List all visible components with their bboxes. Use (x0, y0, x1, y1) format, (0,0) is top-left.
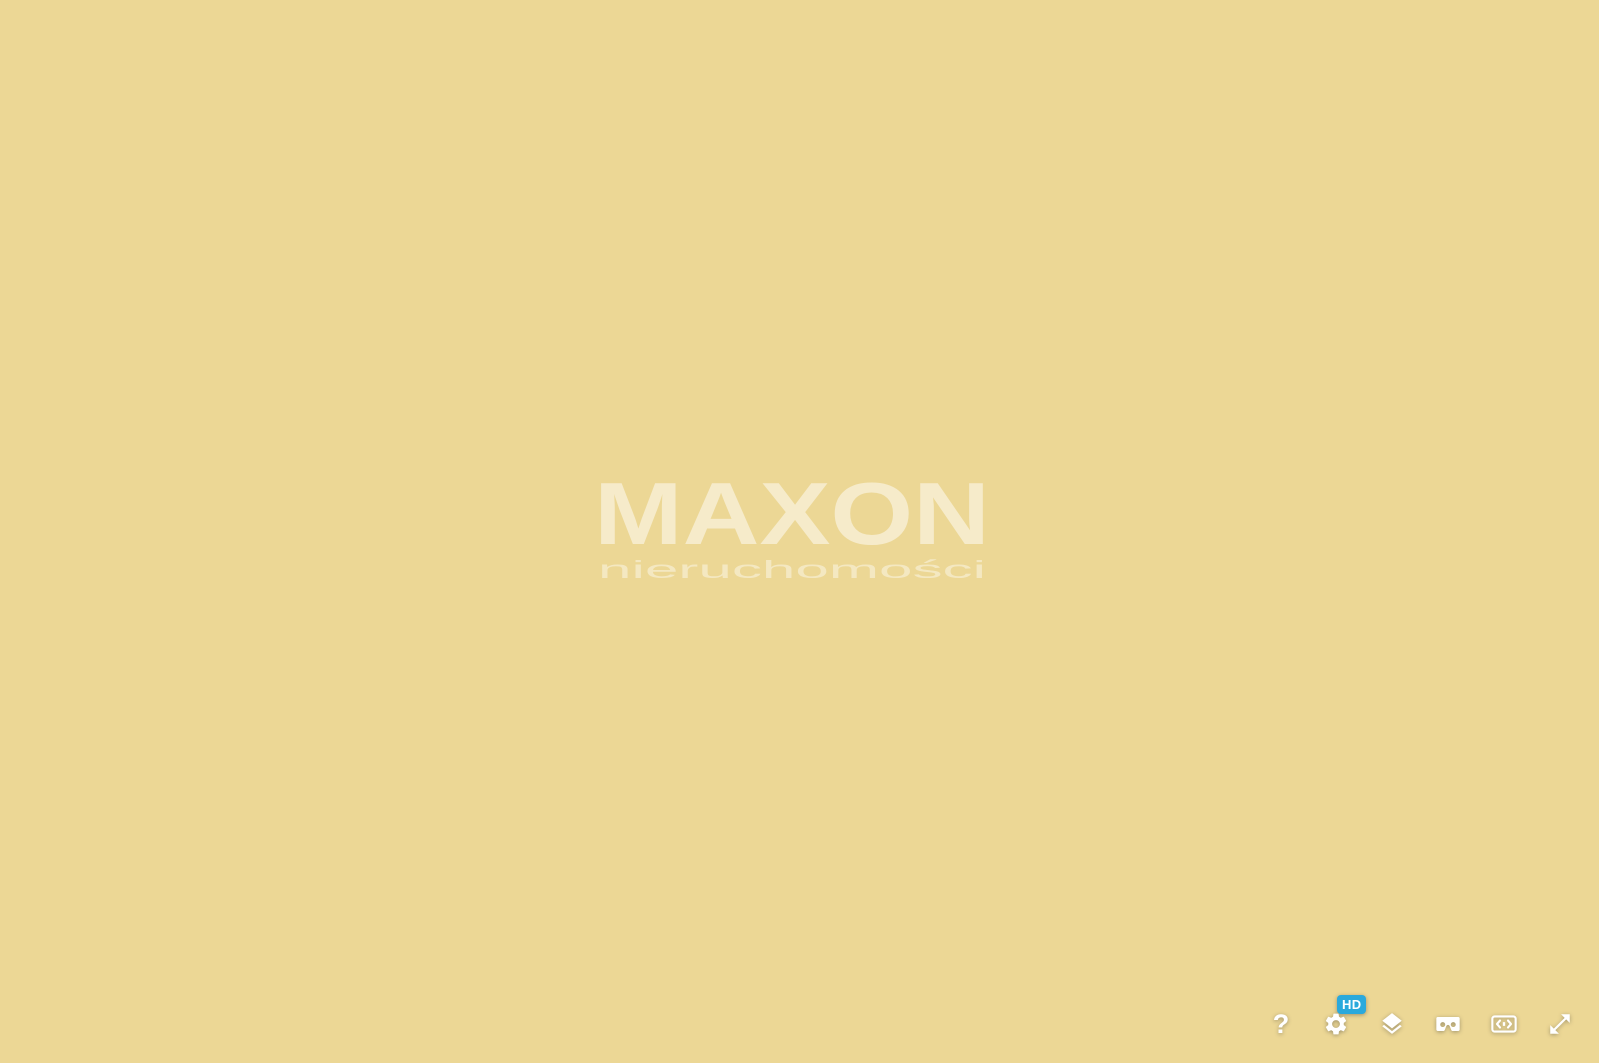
pan-button[interactable] (1488, 1008, 1520, 1040)
screen-pan-icon (1490, 1010, 1518, 1038)
vr-button[interactable] (1432, 1008, 1464, 1040)
hd-badge: HD (1337, 995, 1366, 1014)
scene-3d-render[interactable] (0, 0, 1599, 1063)
layers-button[interactable] (1376, 1008, 1408, 1040)
gear-icon (1323, 1011, 1349, 1037)
fullscreen-button[interactable] (1544, 1008, 1576, 1040)
fullscreen-arrows-icon (1547, 1011, 1573, 1037)
question-mark-icon: ? (1273, 1011, 1290, 1038)
help-button[interactable]: ? (1265, 1008, 1297, 1040)
viewer-stage: MAXON nieruchomości ? HD (0, 0, 1599, 1063)
settings-button[interactable]: HD (1320, 1008, 1352, 1040)
layers-icon (1379, 1011, 1405, 1037)
vr-goggles-icon (1434, 1010, 1462, 1038)
